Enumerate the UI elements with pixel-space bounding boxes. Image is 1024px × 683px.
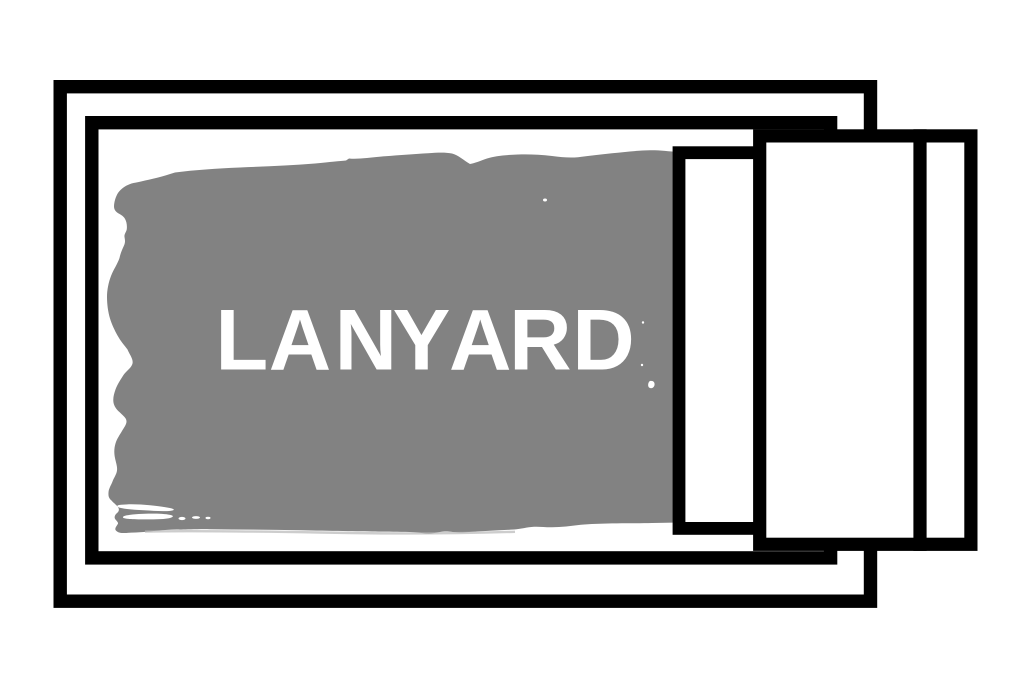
svg-text:LANYARD: LANYARD (215, 293, 634, 389)
